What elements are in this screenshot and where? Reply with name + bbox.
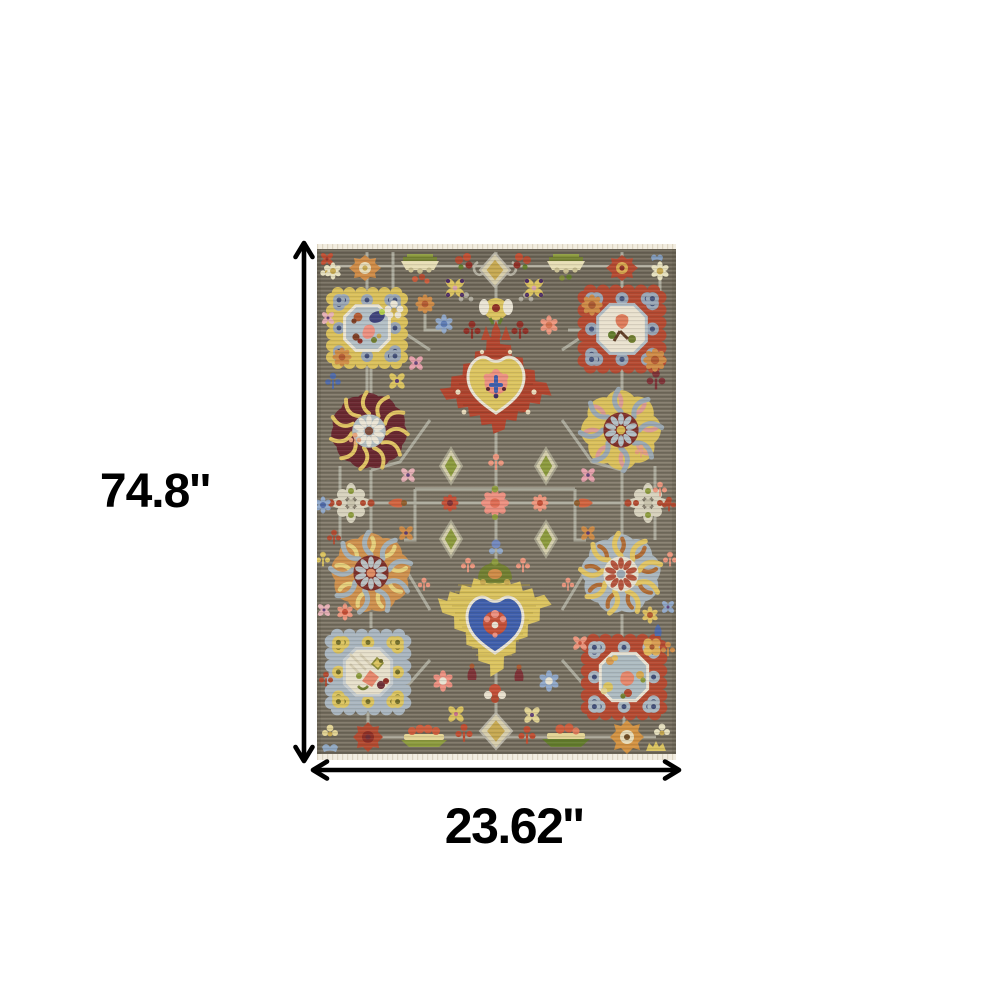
svg-text:23.62'': 23.62'' xyxy=(445,798,583,854)
svg-text:74.8'': 74.8'' xyxy=(100,465,210,518)
